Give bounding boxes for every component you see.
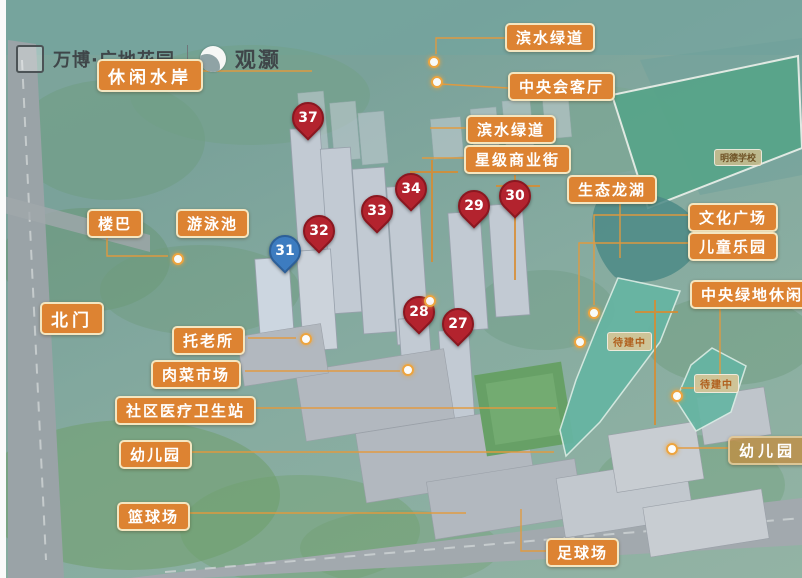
target-ring bbox=[402, 364, 414, 376]
label-star-commercial-street: 星级商业街 bbox=[464, 145, 571, 174]
label-community-clinic: 社区医疗卫生站 bbox=[115, 396, 256, 425]
brand-seal-icon bbox=[16, 45, 44, 73]
label-football-field: 足球场 bbox=[546, 538, 619, 567]
label-kindergarten-left: 幼儿园 bbox=[119, 440, 192, 469]
target-ring bbox=[431, 76, 443, 88]
target-ring bbox=[588, 307, 600, 319]
target-ring bbox=[671, 390, 683, 402]
label-elderly-care: 托老所 bbox=[172, 326, 245, 355]
label-swimming-pool: 游泳池 bbox=[176, 209, 249, 238]
guanlan-logo-icon bbox=[200, 46, 226, 72]
target-ring bbox=[424, 295, 436, 307]
masterplan-aerial-image: 万博·广地花园 观灏 休闲水岸 滨水绿道 中央会客厅 滨水绿道 星级商业街 生态… bbox=[0, 0, 802, 578]
label-basketball-court: 篮球场 bbox=[117, 502, 190, 531]
tag-under-construction-1: 待建中 bbox=[607, 332, 652, 351]
label-leisure-waterfront: 休闲水岸 bbox=[97, 59, 203, 92]
left-margin bbox=[0, 0, 6, 578]
target-ring bbox=[300, 333, 312, 345]
target-ring bbox=[574, 336, 586, 348]
label-children-playground: 儿童乐园 bbox=[688, 232, 778, 261]
label-waterfront-greenway-1: 滨水绿道 bbox=[505, 23, 595, 52]
label-central-green-leisure: 中央绿地休闲区 bbox=[690, 280, 802, 309]
target-ring bbox=[172, 253, 184, 265]
tag-under-construction-2: 待建中 bbox=[694, 374, 739, 393]
brand-sub-name: 观灏 bbox=[235, 44, 281, 74]
tag-school: 明德学校 bbox=[714, 149, 762, 166]
label-culture-plaza: 文化广场 bbox=[688, 203, 778, 232]
label-kindergarten-right: 幼儿园 bbox=[728, 436, 802, 465]
label-resident-shuttle: 楼巴 bbox=[87, 209, 143, 238]
label-central-reception: 中央会客厅 bbox=[508, 72, 615, 101]
label-eco-dragon-lake: 生态龙湖 bbox=[567, 175, 657, 204]
label-north-gate: 北门 bbox=[40, 302, 104, 335]
target-ring bbox=[666, 443, 678, 455]
target-ring bbox=[428, 56, 440, 68]
label-waterfront-greenway-2: 滨水绿道 bbox=[466, 115, 556, 144]
label-wet-market: 肉菜市场 bbox=[151, 360, 241, 389]
